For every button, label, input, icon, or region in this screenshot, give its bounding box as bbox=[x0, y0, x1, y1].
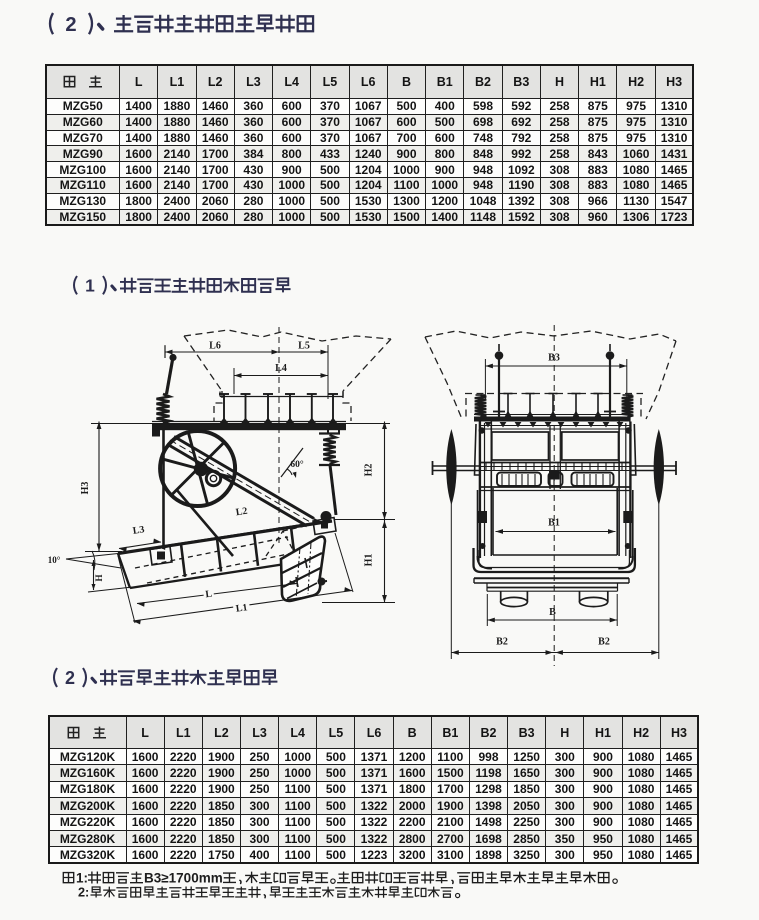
svg-text:L3: L3 bbox=[132, 524, 145, 537]
svg-text:10°: 10° bbox=[48, 555, 61, 565]
svg-text:B3: B3 bbox=[548, 353, 560, 364]
svg-text:B: B bbox=[549, 607, 556, 618]
svg-text:1: 1 bbox=[85, 275, 95, 295]
svg-text:H3: H3 bbox=[80, 482, 91, 495]
svg-text:B2: B2 bbox=[598, 637, 610, 648]
svg-text:2: 2 bbox=[65, 668, 75, 688]
svg-text:H: H bbox=[94, 574, 104, 581]
svg-text:1:: 1: bbox=[76, 871, 88, 886]
svg-text:L4: L4 bbox=[275, 363, 287, 374]
svg-text:B2: B2 bbox=[496, 637, 508, 648]
svg-text:2:: 2: bbox=[78, 886, 89, 900]
svg-text:B3≥1700mm: B3≥1700mm bbox=[144, 871, 223, 886]
svg-text:H1: H1 bbox=[364, 554, 375, 567]
svg-text:L1: L1 bbox=[235, 602, 248, 615]
svg-text:60°: 60° bbox=[290, 459, 304, 470]
svg-text:B1: B1 bbox=[548, 518, 560, 529]
svg-text:H2: H2 bbox=[364, 464, 375, 477]
svg-text:L6: L6 bbox=[209, 341, 221, 352]
svg-text:2: 2 bbox=[65, 14, 76, 36]
svg-text:L2: L2 bbox=[235, 506, 248, 519]
svg-text:L5: L5 bbox=[298, 341, 310, 352]
